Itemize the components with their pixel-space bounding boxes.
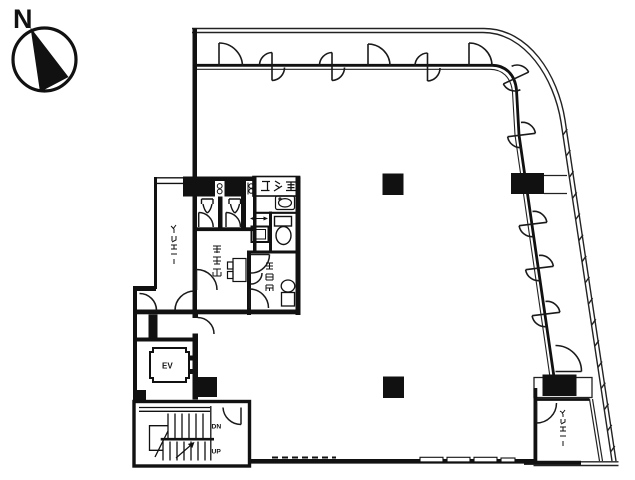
svg-text:N: N (13, 4, 33, 34)
svg-text:DN: DN (212, 424, 222, 431)
svg-text:EV: EV (162, 362, 173, 371)
svg-text:UP: UP (212, 449, 222, 456)
